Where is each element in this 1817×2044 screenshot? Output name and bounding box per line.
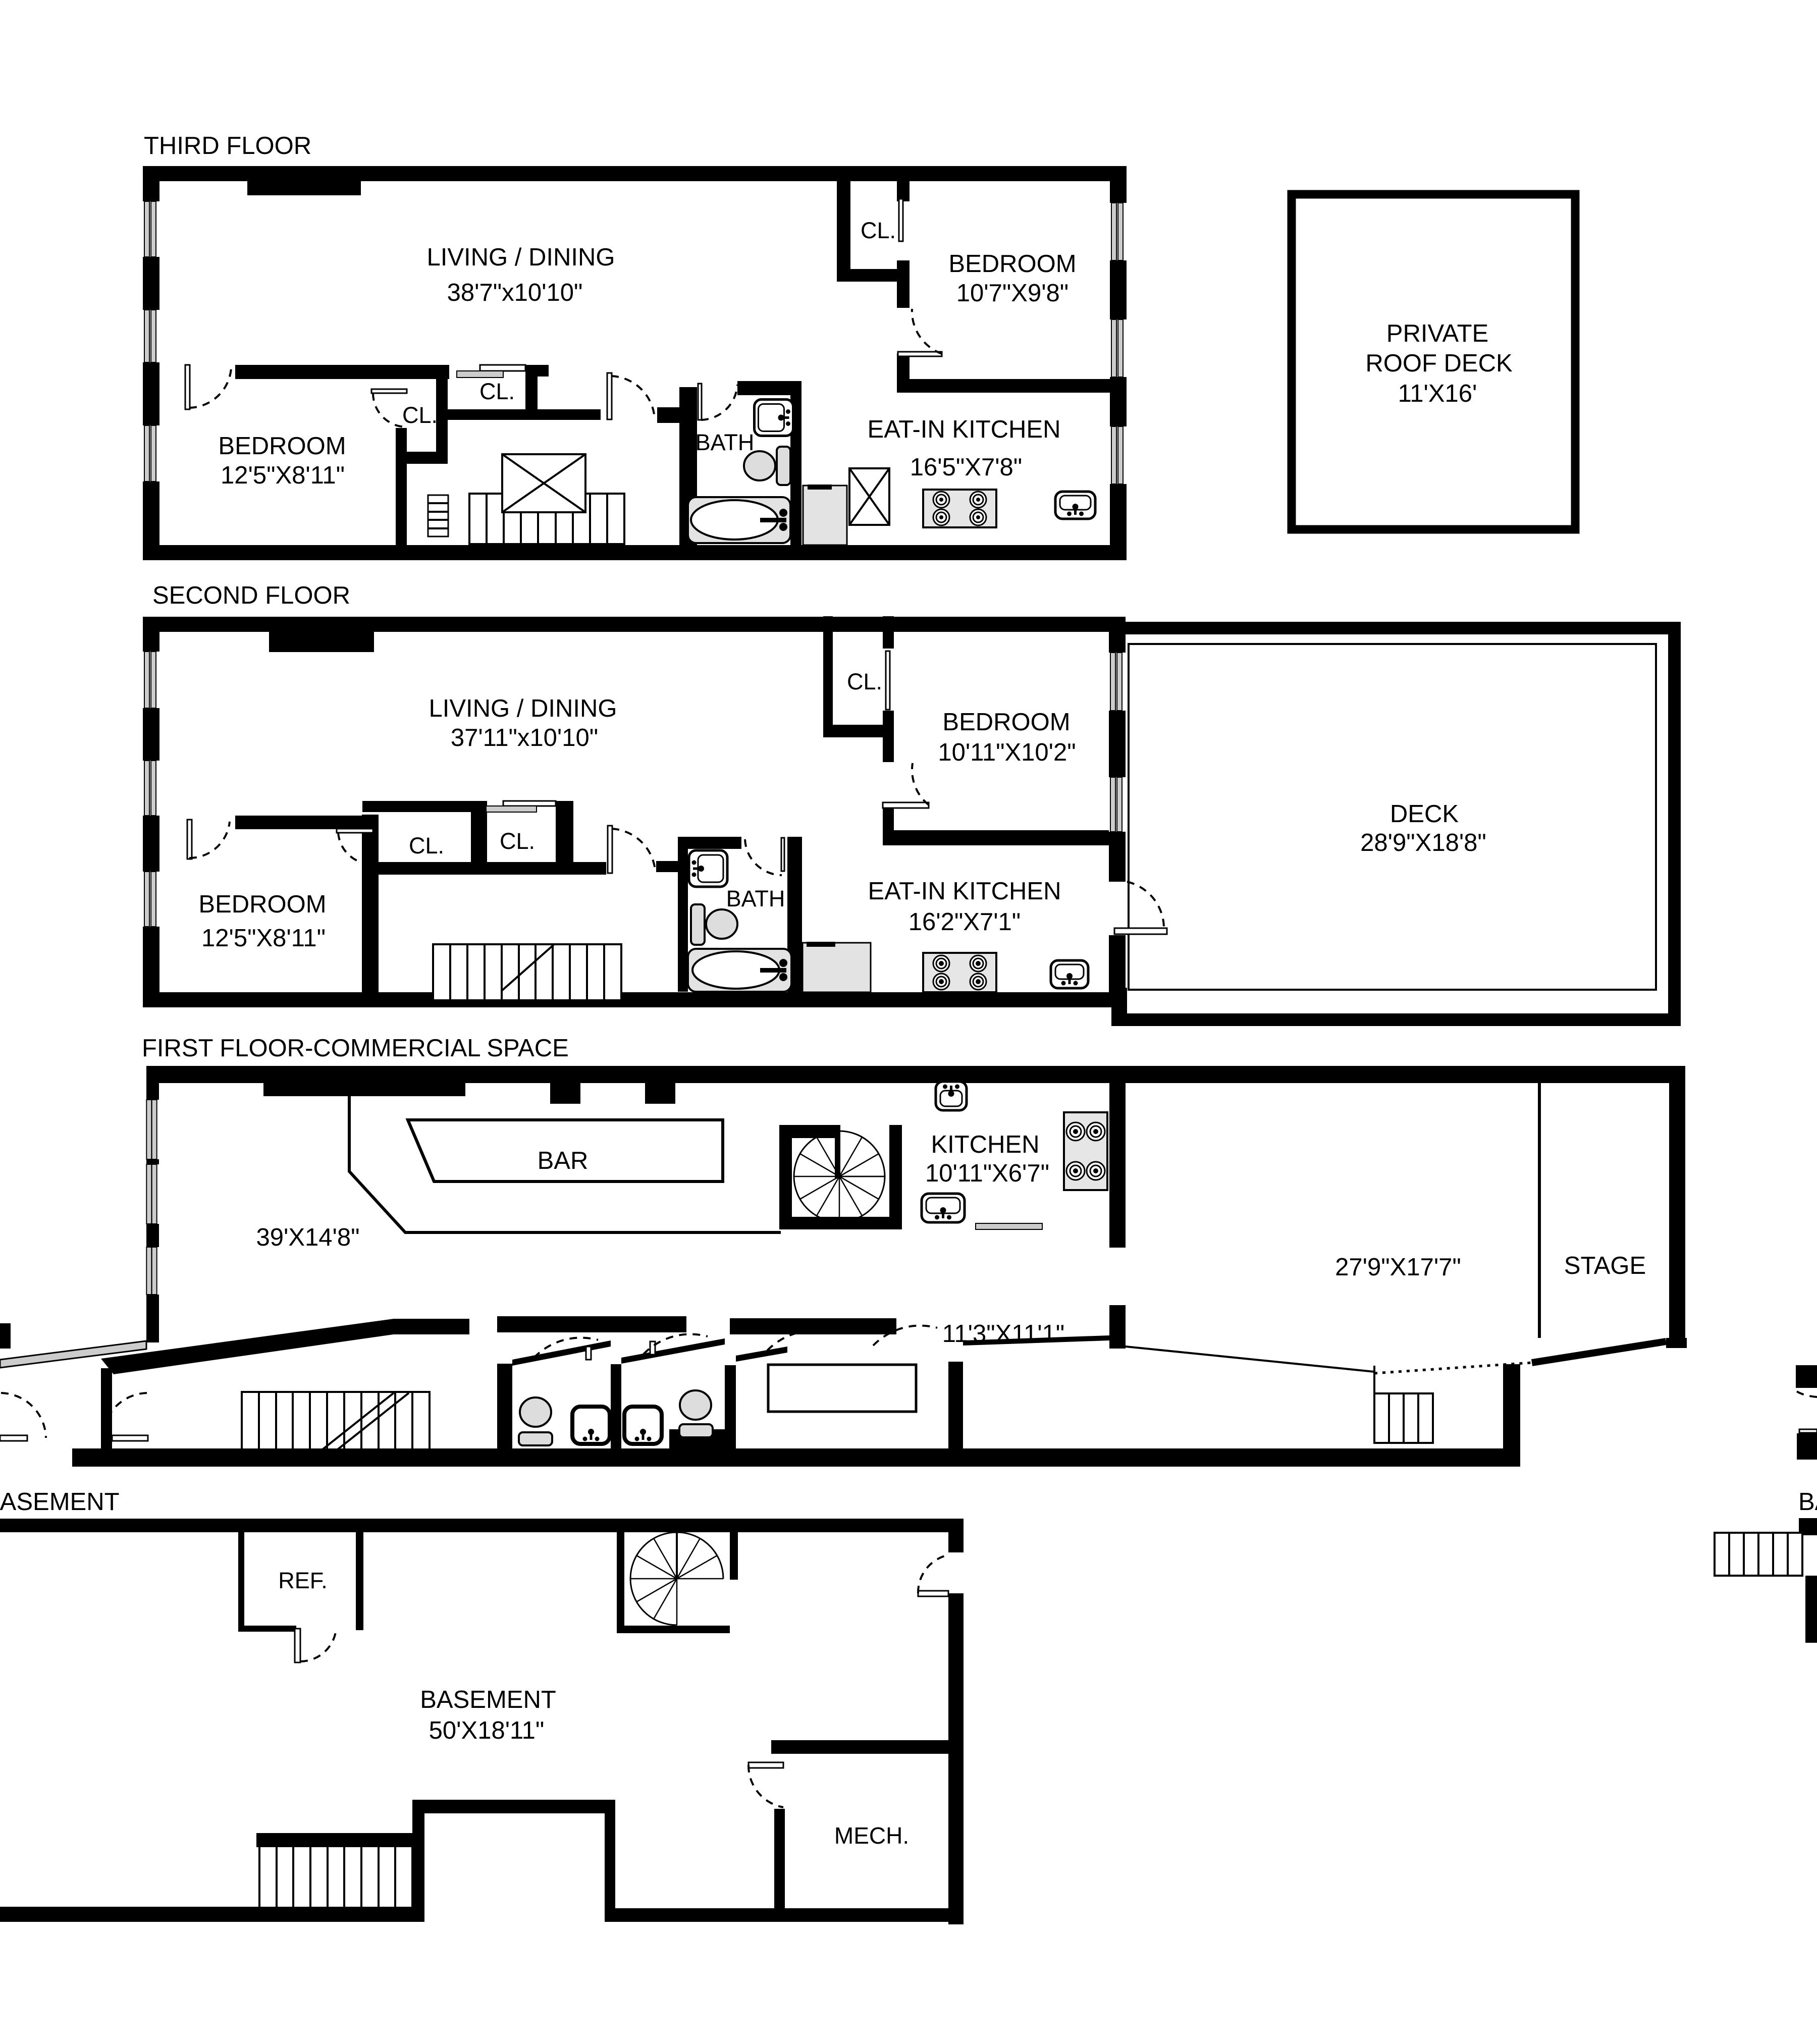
svg-text:REF.: REF. — [278, 1568, 328, 1593]
svg-text:THIRD FLOOR: THIRD FLOOR — [144, 132, 311, 159]
svg-text:BAR: BAR — [538, 1147, 589, 1174]
svg-text:50'X18'11": 50'X18'11" — [429, 1717, 545, 1744]
svg-text:BASEMENT: BASEMENT — [0, 1488, 120, 1516]
svg-text:11'X16': 11'X16' — [1398, 380, 1477, 407]
svg-text:BATH: BATH — [726, 886, 785, 911]
svg-text:CL.: CL. — [402, 402, 438, 428]
svg-text:27'9"X17'7": 27'9"X17'7" — [1335, 1254, 1461, 1281]
svg-text:BEDROOM: BEDROOM — [218, 433, 346, 460]
svg-text:11'3"X11'1": 11'3"X11'1" — [942, 1320, 1064, 1348]
svg-text:38'7"x10'10": 38'7"x10'10" — [447, 279, 583, 306]
svg-text:BEDROOM: BEDROOM — [942, 709, 1070, 736]
svg-text:CL.: CL. — [861, 218, 896, 243]
svg-text:STAGE: STAGE — [1564, 1252, 1646, 1279]
svg-text:EAT-IN KITCHEN: EAT-IN KITCHEN — [868, 416, 1061, 443]
svg-text:BEDROOM: BEDROOM — [198, 891, 326, 918]
svg-text:CL.: CL. — [479, 379, 515, 404]
svg-text:CL.: CL. — [500, 828, 535, 854]
svg-text:28'9"X18'8": 28'9"X18'8" — [1360, 829, 1486, 856]
svg-text:12'5"X8'11": 12'5"X8'11" — [221, 462, 345, 489]
svg-text:10'7"X9'8": 10'7"X9'8" — [956, 280, 1068, 307]
svg-text:10'11"X10'2": 10'11"X10'2" — [938, 739, 1076, 766]
svg-text:CL.: CL. — [847, 669, 882, 694]
svg-text:MECH.: MECH. — [834, 1822, 909, 1849]
svg-text:BA: BA — [1798, 1488, 1817, 1516]
svg-text:DECK: DECK — [1390, 800, 1459, 828]
svg-text:KITCHEN: KITCHEN — [931, 1131, 1039, 1158]
svg-text:37'11"x10'10": 37'11"x10'10" — [451, 724, 598, 751]
svg-text:SECOND FLOOR: SECOND FLOOR — [152, 582, 350, 609]
svg-text:CL.: CL. — [409, 833, 444, 858]
svg-text:BEDROOM: BEDROOM — [948, 250, 1076, 278]
svg-text:LIVING / DINING: LIVING / DINING — [429, 695, 617, 722]
svg-text:EAT-IN KITCHEN: EAT-IN KITCHEN — [868, 878, 1061, 905]
svg-text:39'X14'8": 39'X14'8" — [256, 1224, 359, 1251]
svg-text:ROOF DECK: ROOF DECK — [1365, 350, 1513, 377]
svg-text:12'5"X8'11": 12'5"X8'11" — [201, 925, 326, 952]
svg-text:LIVING / DINING: LIVING / DINING — [426, 244, 615, 271]
svg-text:BASEMENT: BASEMENT — [420, 1686, 556, 1713]
svg-text:PRIVATE: PRIVATE — [1386, 320, 1488, 347]
svg-text:BATH: BATH — [696, 429, 755, 455]
svg-text:16'5"X7'8": 16'5"X7'8" — [910, 454, 1022, 481]
svg-text:16'2"X7'1": 16'2"X7'1" — [908, 908, 1021, 936]
svg-text:FIRST FLOOR-COMMERCIAL SPACE: FIRST FLOOR-COMMERCIAL SPACE — [142, 1035, 569, 1062]
svg-text:10'11"X6'7": 10'11"X6'7" — [925, 1160, 1049, 1187]
